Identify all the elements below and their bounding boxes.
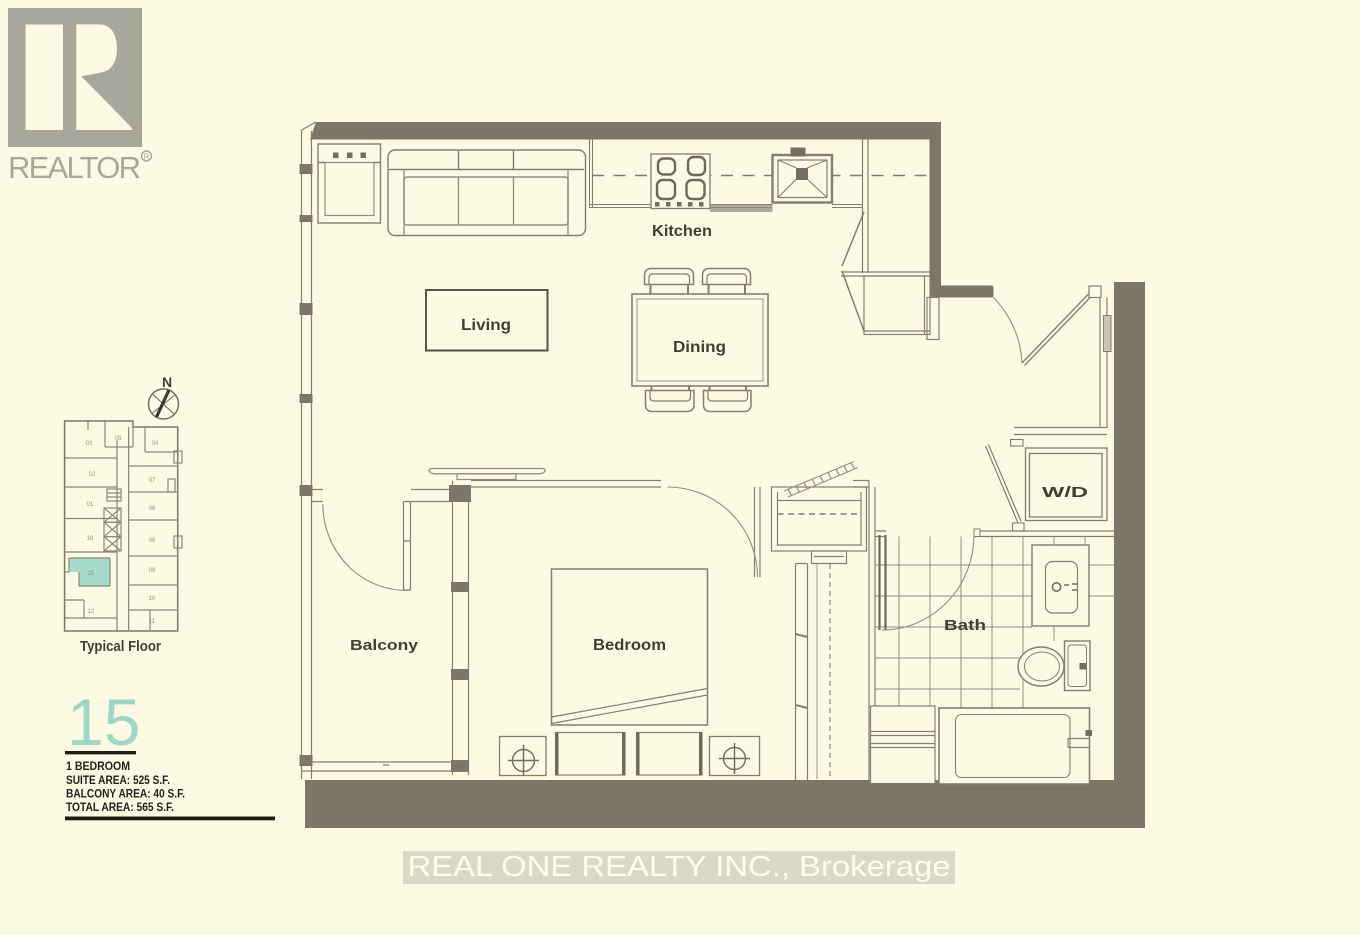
svg-text:Bedroom: Bedroom — [593, 637, 666, 654]
svg-text:Balcony: Balcony — [350, 637, 419, 654]
svg-text:10: 10 — [149, 596, 156, 602]
svg-text:15: 15 — [67, 685, 140, 759]
svg-text:04: 04 — [152, 441, 159, 447]
svg-text:BALCONY AREA: 40 S.F.: BALCONY AREA: 40 S.F. — [66, 787, 185, 801]
svg-text:09: 09 — [149, 568, 156, 574]
svg-text:01: 01 — [87, 502, 94, 508]
svg-text:07: 07 — [149, 478, 156, 484]
svg-text:R: R — [144, 153, 150, 162]
svg-text:Dining: Dining — [673, 339, 726, 356]
svg-text:REALTOR: REALTOR — [8, 150, 142, 185]
svg-text:15: 15 — [88, 571, 95, 577]
svg-text:W/D: W/D — [1042, 484, 1088, 501]
svg-text:SUITE AREA: 525 S.F.: SUITE AREA: 525 S.F. — [66, 773, 170, 787]
svg-text:16: 16 — [87, 536, 94, 542]
svg-text:03: 03 — [86, 441, 93, 447]
svg-text:REAL ONE REALTY INC., Brokerag: REAL ONE REALTY INC., Brokerage — [408, 851, 951, 883]
svg-text:05: 05 — [115, 436, 122, 442]
svg-text:Living: Living — [461, 317, 511, 334]
svg-text:TOTAL AREA: 565 S.F.: TOTAL AREA: 565 S.F. — [66, 800, 174, 814]
svg-text:Bath: Bath — [944, 617, 986, 634]
svg-text:1 BEDROOM: 1 BEDROOM — [66, 759, 130, 773]
svg-text:11: 11 — [149, 619, 156, 625]
svg-text:Kitchen: Kitchen — [652, 223, 712, 240]
svg-text:12: 12 — [88, 609, 95, 615]
svg-text:08: 08 — [149, 538, 156, 544]
svg-text:02: 02 — [89, 472, 96, 478]
svg-text:N: N — [162, 374, 172, 390]
svg-text:06: 06 — [149, 506, 156, 512]
svg-text:Typical Floor: Typical Floor — [80, 639, 161, 655]
